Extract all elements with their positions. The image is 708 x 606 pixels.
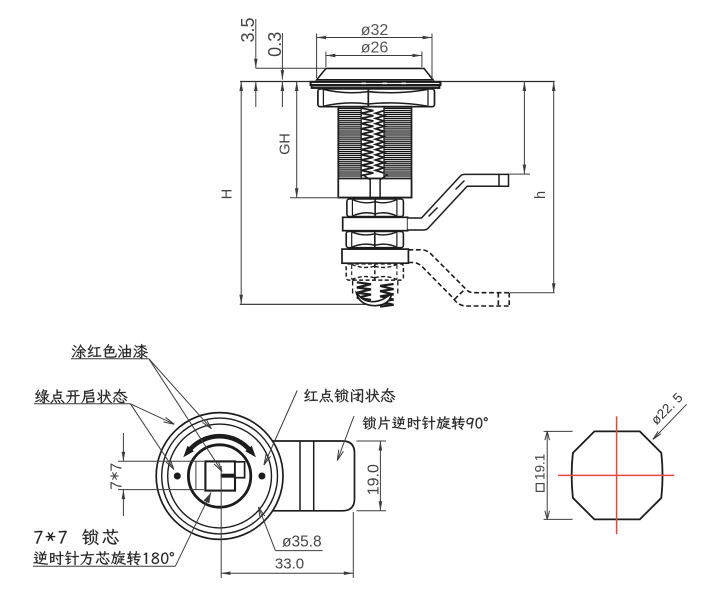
svg-text:0.3: 0.3: [265, 32, 285, 57]
svg-text:GH: GH: [278, 133, 294, 155]
svg-text:H: H: [220, 189, 236, 199]
svg-text:3.5: 3.5: [238, 17, 258, 42]
svg-text:7: 7: [109, 481, 126, 490]
svg-text:h: h: [533, 191, 549, 199]
svg-text:ø26: ø26: [361, 40, 389, 57]
svg-text:7: 7: [109, 463, 126, 472]
svg-text:19.0: 19.0: [366, 464, 383, 495]
svg-text:19.1: 19.1: [533, 454, 548, 480]
svg-text:33.0: 33.0: [275, 555, 304, 572]
svg-text:ø35.8: ø35.8: [282, 534, 322, 551]
svg-text:ø32: ø32: [361, 22, 389, 39]
